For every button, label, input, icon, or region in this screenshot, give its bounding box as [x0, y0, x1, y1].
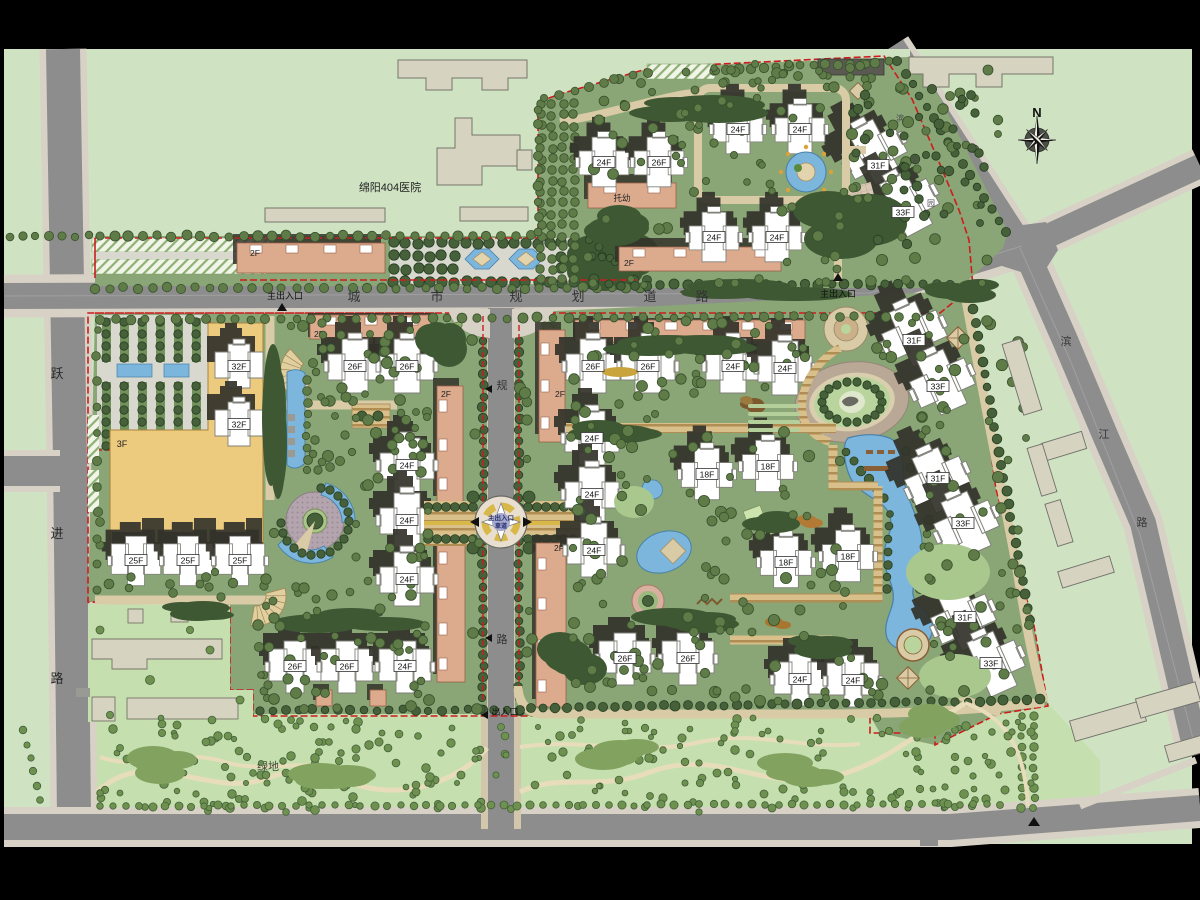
svg-text:路: 路	[1137, 516, 1148, 529]
svg-text:31F: 31F	[931, 473, 946, 483]
svg-text:18F: 18F	[700, 469, 715, 479]
svg-text:N: N	[1032, 105, 1041, 120]
svg-text:31F: 31F	[907, 335, 922, 345]
svg-text:绵阳404医院: 绵阳404医院	[359, 180, 421, 194]
svg-text:24F: 24F	[726, 361, 741, 371]
svg-text:車道: 車道	[495, 522, 507, 530]
svg-text:主出入口: 主出入口	[267, 290, 303, 301]
svg-text:18F: 18F	[779, 557, 794, 567]
svg-text:2F: 2F	[441, 389, 451, 399]
svg-text:26F: 26F	[400, 361, 415, 371]
svg-text:24F: 24F	[587, 545, 602, 555]
svg-text:26F: 26F	[652, 157, 667, 167]
svg-text:24F: 24F	[770, 232, 785, 242]
svg-text:道: 道	[643, 289, 656, 304]
svg-text:规: 规	[497, 378, 508, 392]
svg-text:32F: 32F	[232, 419, 247, 429]
svg-text:24F: 24F	[597, 157, 612, 167]
svg-text:18F: 18F	[841, 551, 856, 561]
svg-text:滨: 滨	[896, 113, 904, 123]
svg-text:主出入口: 主出入口	[488, 513, 514, 522]
svg-text:24F: 24F	[707, 232, 722, 242]
svg-text:规: 规	[509, 289, 522, 304]
svg-text:18F: 18F	[761, 461, 776, 471]
svg-text:24F: 24F	[400, 574, 415, 584]
svg-text:2F: 2F	[624, 258, 634, 268]
svg-text:26F: 26F	[681, 653, 696, 663]
svg-text:园: 园	[927, 199, 935, 208]
svg-text:31F: 31F	[871, 160, 886, 170]
svg-text:跃: 跃	[50, 366, 63, 381]
svg-text:出入口: 出入口	[491, 706, 518, 717]
svg-text:25F: 25F	[233, 555, 248, 565]
svg-text:26F: 26F	[340, 661, 355, 671]
svg-text:33F: 33F	[896, 207, 911, 217]
svg-text:24F: 24F	[778, 363, 793, 373]
svg-text:2F: 2F	[555, 389, 565, 399]
svg-text:24F: 24F	[585, 433, 600, 443]
svg-text:路: 路	[695, 289, 708, 304]
svg-text:江: 江	[1099, 428, 1110, 441]
svg-text:24F: 24F	[793, 674, 808, 684]
svg-text:33F: 33F	[984, 658, 999, 668]
svg-text:市: 市	[430, 289, 443, 304]
svg-text:路: 路	[497, 633, 508, 646]
svg-text:24F: 24F	[398, 661, 413, 671]
svg-text:26F: 26F	[618, 653, 633, 663]
svg-text:2F: 2F	[250, 248, 260, 258]
svg-text:主出入口: 主出入口	[820, 288, 856, 299]
svg-text:滨: 滨	[1061, 334, 1072, 348]
svg-text:24F: 24F	[731, 124, 746, 134]
svg-text:24F: 24F	[793, 124, 808, 134]
svg-text:33F: 33F	[931, 381, 946, 391]
svg-text:31F: 31F	[958, 612, 973, 622]
svg-text:33F: 33F	[956, 518, 971, 528]
svg-text:托幼: 托幼	[613, 193, 630, 203]
svg-text:24F: 24F	[400, 515, 415, 525]
svg-text:官: 官	[912, 155, 920, 165]
svg-text:24F: 24F	[846, 675, 861, 685]
svg-text:24F: 24F	[585, 489, 600, 499]
svg-text:划: 划	[571, 289, 584, 304]
svg-text:32F: 32F	[232, 361, 247, 371]
svg-text:25F: 25F	[129, 555, 144, 565]
svg-text:城: 城	[347, 289, 360, 304]
svg-text:进: 进	[50, 526, 63, 541]
svg-text:3F: 3F	[117, 439, 128, 449]
svg-text:26F: 26F	[586, 361, 601, 371]
svg-text:24F: 24F	[400, 460, 415, 470]
svg-text:26F: 26F	[641, 361, 656, 371]
svg-text:25F: 25F	[181, 555, 196, 565]
svg-text:26F: 26F	[288, 661, 303, 671]
svg-text:路: 路	[50, 671, 63, 686]
svg-text:26F: 26F	[348, 361, 363, 371]
